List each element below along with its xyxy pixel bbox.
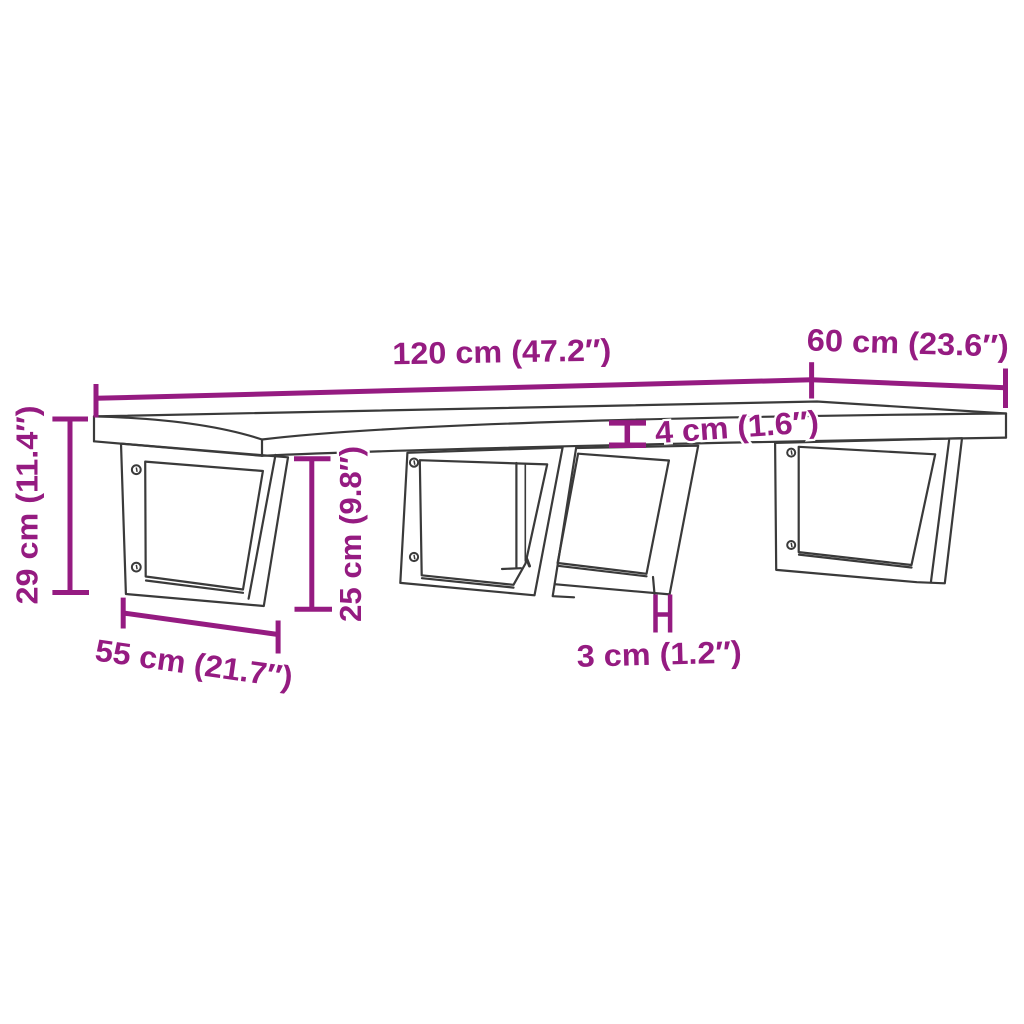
svg-text:60 cm (23.6″): 60 cm (23.6″)	[806, 322, 1009, 363]
svg-text:29 cm (11.4″): 29 cm (11.4″)	[10, 406, 45, 605]
svg-text:120 cm (47.2″): 120 cm (47.2″)	[392, 332, 612, 371]
svg-text:25 cm (9.8″): 25 cm (9.8″)	[333, 446, 368, 622]
svg-text:3 cm (1.2″): 3 cm (1.2″)	[576, 634, 742, 673]
